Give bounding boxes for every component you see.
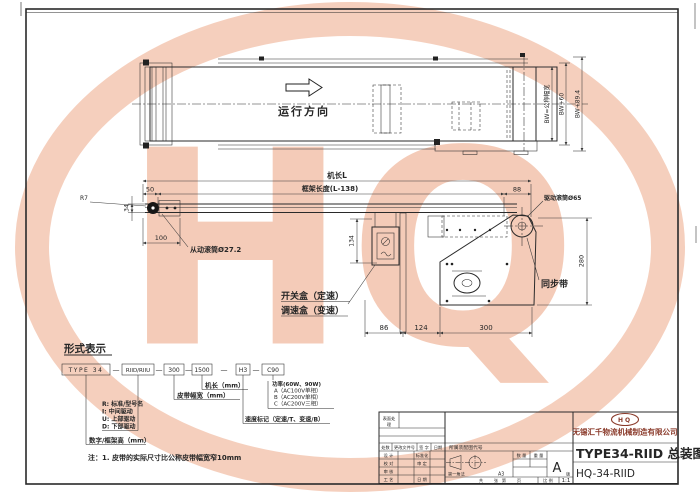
dim-bw-label: BW=公称幅宽	[543, 85, 551, 124]
power-line-4: C（AC200V三相）	[274, 400, 322, 408]
drawing-title: TYPE34-RIID 总装图	[576, 446, 700, 461]
row-standardize: 标准化	[416, 452, 429, 459]
dim-100: 100	[155, 234, 167, 242]
no-label: 第	[502, 477, 506, 484]
sheet-size: A3	[498, 472, 504, 478]
switch-box-label: 开关盒（定速）	[281, 290, 344, 302]
frame-height-label: 数字/框架高（mm）	[89, 436, 150, 445]
surface-treatment-line1: 表面处	[383, 415, 396, 422]
model-dash-2: —	[156, 367, 163, 375]
direction-label: 运行方向	[278, 104, 330, 118]
sheets-label: 张	[494, 477, 499, 484]
drawing-sheet: HQ	[0, 0, 700, 495]
logo-text: HQ	[618, 417, 632, 424]
model-box-3: 300	[168, 367, 180, 374]
sync-belt-label: 同步带	[541, 278, 568, 290]
speed-mark-label: 速度标记（定速/T、变速/B）	[245, 416, 324, 424]
r-line-1: R: 标准/型号名	[102, 400, 143, 408]
version-letter: A	[553, 461, 562, 476]
model-box-5: H3	[239, 367, 248, 374]
model-dash-3: —	[185, 367, 192, 375]
col-chushu: 处数	[381, 444, 390, 451]
dim-r7: R7	[80, 195, 88, 202]
weight-label: 重 量	[534, 452, 544, 459]
row-process: 工 艺	[384, 477, 394, 482]
dim-bw60-label: BW+60	[559, 93, 566, 116]
r-line-2: I: 中间驱动	[102, 408, 133, 416]
drive-roller-label: 驱动滚筒Ø65	[544, 194, 581, 202]
speed-box-label: 调速盒（变速）	[281, 305, 344, 317]
row-design: 设 计	[384, 452, 394, 459]
dim-bw894-label: BW+89.4	[575, 90, 582, 118]
dim-300: 300	[479, 324, 492, 332]
version-suffix: 版	[566, 471, 571, 478]
r-line-4: D: 下部驱动	[102, 423, 135, 431]
model-dash-5: —	[253, 367, 260, 375]
power-line-1: 功率(60W、90W)	[272, 380, 321, 388]
dim-86: 86	[380, 324, 389, 332]
driven-roller-label: 从动滚筒Ø27.2	[190, 245, 241, 254]
dim-50: 50	[146, 186, 154, 194]
model-dash-1: —	[113, 367, 120, 375]
r-line-3: U: 上部驱动	[102, 415, 135, 423]
model-dash-4: —	[221, 367, 228, 375]
machine-len-label: 机长（mm）	[205, 381, 245, 390]
row-review: 审 核	[384, 468, 395, 475]
machine-length-label: 机长L	[327, 170, 347, 180]
drawing-number: HQ-34-RIID	[576, 468, 635, 480]
frame-length-label: 框架长度(L-138)	[302, 184, 358, 193]
dim-280: 280	[578, 255, 586, 267]
model-code-heading: 形式表示	[64, 342, 106, 355]
assembly-drawing: HQ	[0, 0, 700, 495]
dim-88: 88	[513, 186, 521, 194]
projection-label: 第一角法	[448, 471, 465, 478]
col-signature: 签 字	[419, 444, 429, 450]
scale-value: 1:1	[562, 478, 571, 484]
company-logo: HQ	[612, 414, 639, 426]
surface-treatment-line2: 理	[387, 422, 392, 427]
scale-label: 比 例	[543, 477, 553, 484]
model-box-2: RIID/RIIU	[126, 368, 150, 374]
model-box-4: 1500	[194, 367, 209, 374]
total-label: 共	[479, 477, 483, 484]
power-line-2: A（AC100V单相）	[274, 387, 322, 395]
row-check: 校 对	[384, 460, 394, 467]
dim-124: 124	[414, 324, 428, 332]
belt-width-label: 皮带幅宽（mm）	[177, 391, 230, 400]
col-change-file: 更改文件号	[394, 444, 415, 451]
dim-34: 34	[124, 204, 131, 212]
model-box-6: C90	[267, 367, 279, 374]
drawing-note: 注：1. 皮带的实际尺寸比公称皮带幅宽窄10mm	[88, 453, 241, 462]
row-approve: 审 定	[417, 460, 427, 467]
power-line-3: B（AC200V单相）	[274, 393, 322, 401]
model-box-1: TYPE 34	[68, 367, 104, 374]
assembly-code-label: 所属装配图代号	[449, 444, 483, 451]
qty-label: 数 量	[517, 452, 527, 459]
company-name: 无锡汇千物流机械制造有限公司	[572, 427, 678, 437]
dim-134: 134	[349, 235, 356, 247]
